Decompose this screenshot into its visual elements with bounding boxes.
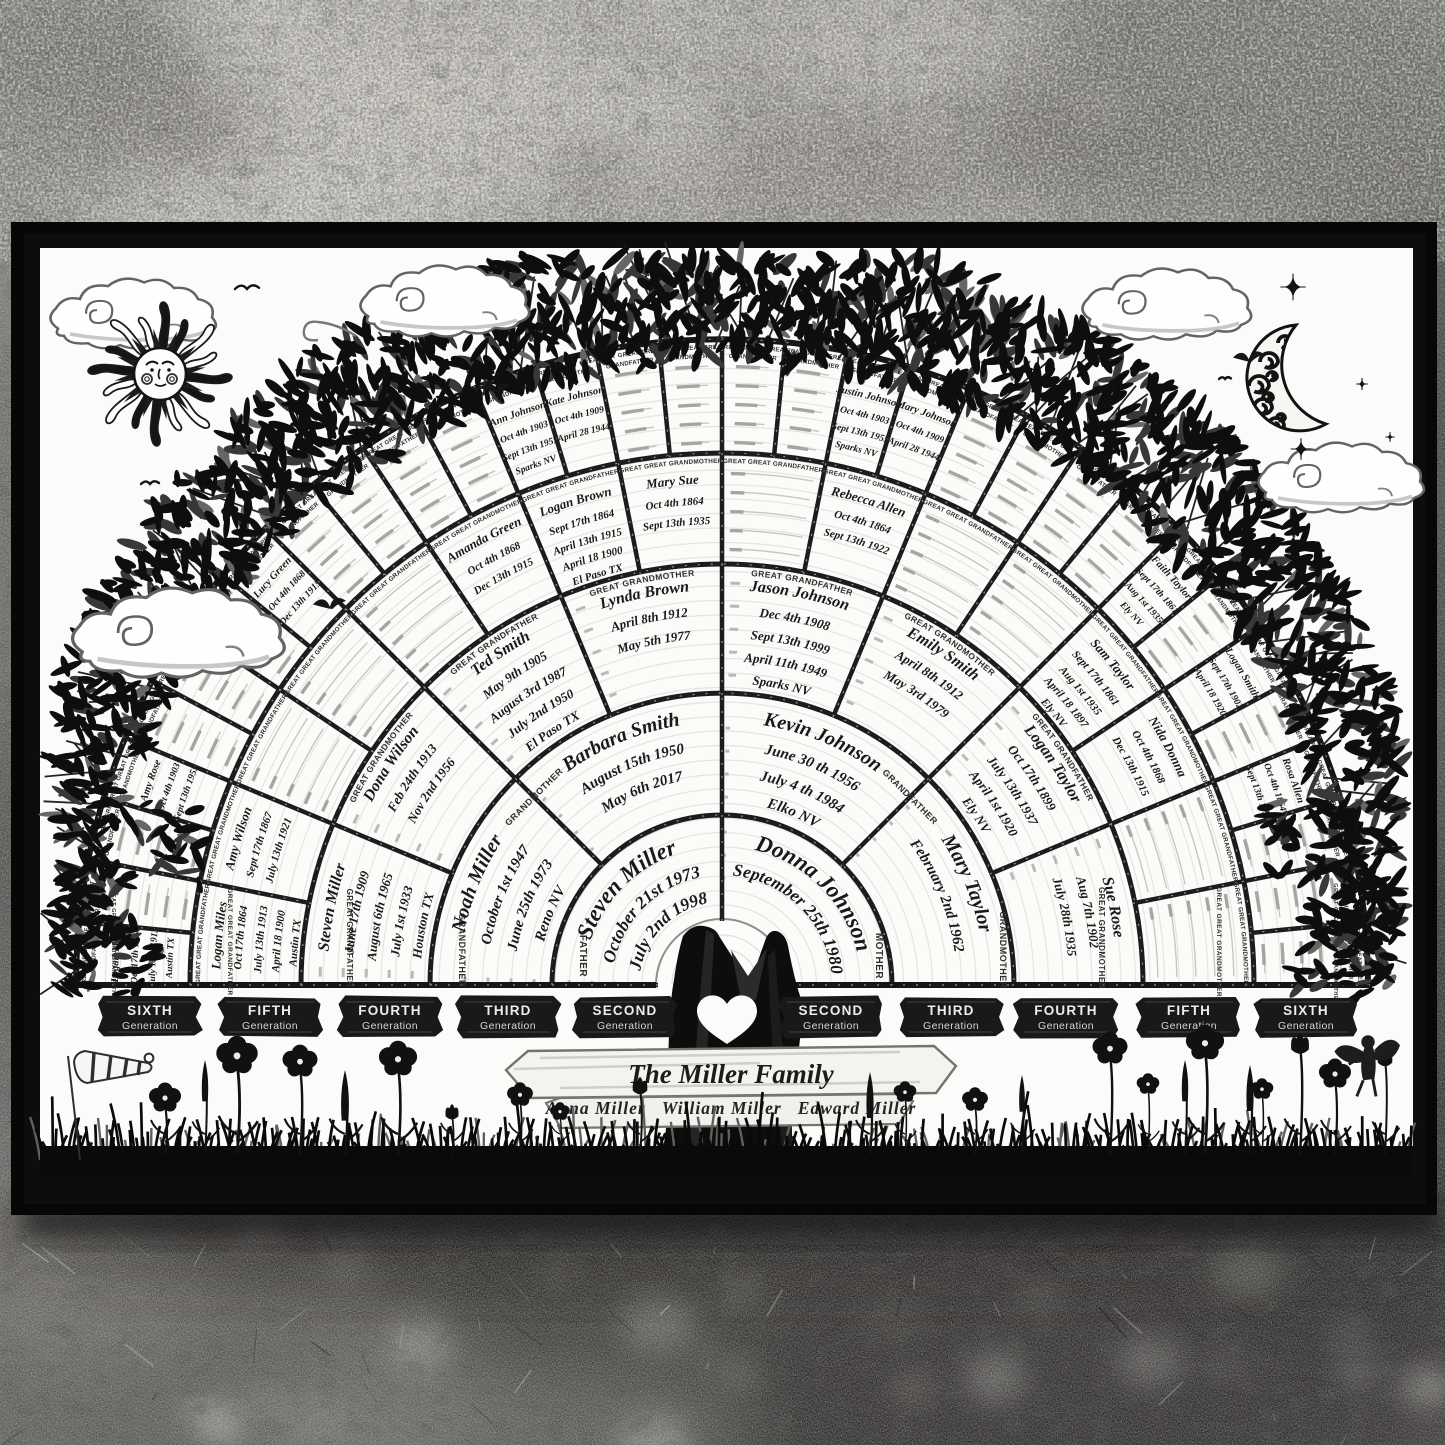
- svg-text:GREAT GREAT GRANDMOTHER: GREAT GREAT GRANDMOTHER: [1215, 887, 1222, 997]
- svg-text:GRANDMOTHER: GRANDMOTHER: [998, 911, 1008, 989]
- svg-text:Generation: Generation: [362, 1020, 418, 1032]
- svg-text:Generation: Generation: [122, 1020, 178, 1032]
- svg-text:Generation: Generation: [1278, 1020, 1334, 1032]
- svg-text:Generation: Generation: [923, 1020, 979, 1032]
- svg-text:FATHER: FATHER: [577, 935, 588, 978]
- svg-text:SIXTH: SIXTH: [127, 1003, 173, 1018]
- svg-text:Generation: Generation: [480, 1020, 536, 1032]
- svg-text:THIRD: THIRD: [927, 1003, 974, 1018]
- svg-text:FOURTH: FOURTH: [1034, 1003, 1097, 1018]
- svg-text:Anna Miller William Miller: Anna Miller William Miller Edward Miller: [545, 1098, 917, 1118]
- svg-text:MOTHER: MOTHER: [873, 933, 884, 980]
- svg-text:THIRD: THIRD: [484, 1003, 531, 1018]
- svg-text:The Miller Family: The Miller Family: [628, 1059, 835, 1089]
- svg-text:FIFTH: FIFTH: [248, 1003, 292, 1018]
- svg-text:Generation: Generation: [1038, 1020, 1094, 1032]
- svg-text:FIFTH: FIFTH: [1167, 1003, 1211, 1018]
- svg-text:SECOND: SECOND: [799, 1003, 864, 1018]
- svg-text:SECOND: SECOND: [593, 1003, 658, 1018]
- svg-text:Generation: Generation: [242, 1020, 298, 1032]
- svg-text:Generation: Generation: [803, 1020, 859, 1032]
- svg-text:FOURTH: FOURTH: [358, 1003, 421, 1018]
- svg-text:Generation: Generation: [597, 1020, 653, 1032]
- svg-text:SIXTH: SIXTH: [1283, 1003, 1329, 1018]
